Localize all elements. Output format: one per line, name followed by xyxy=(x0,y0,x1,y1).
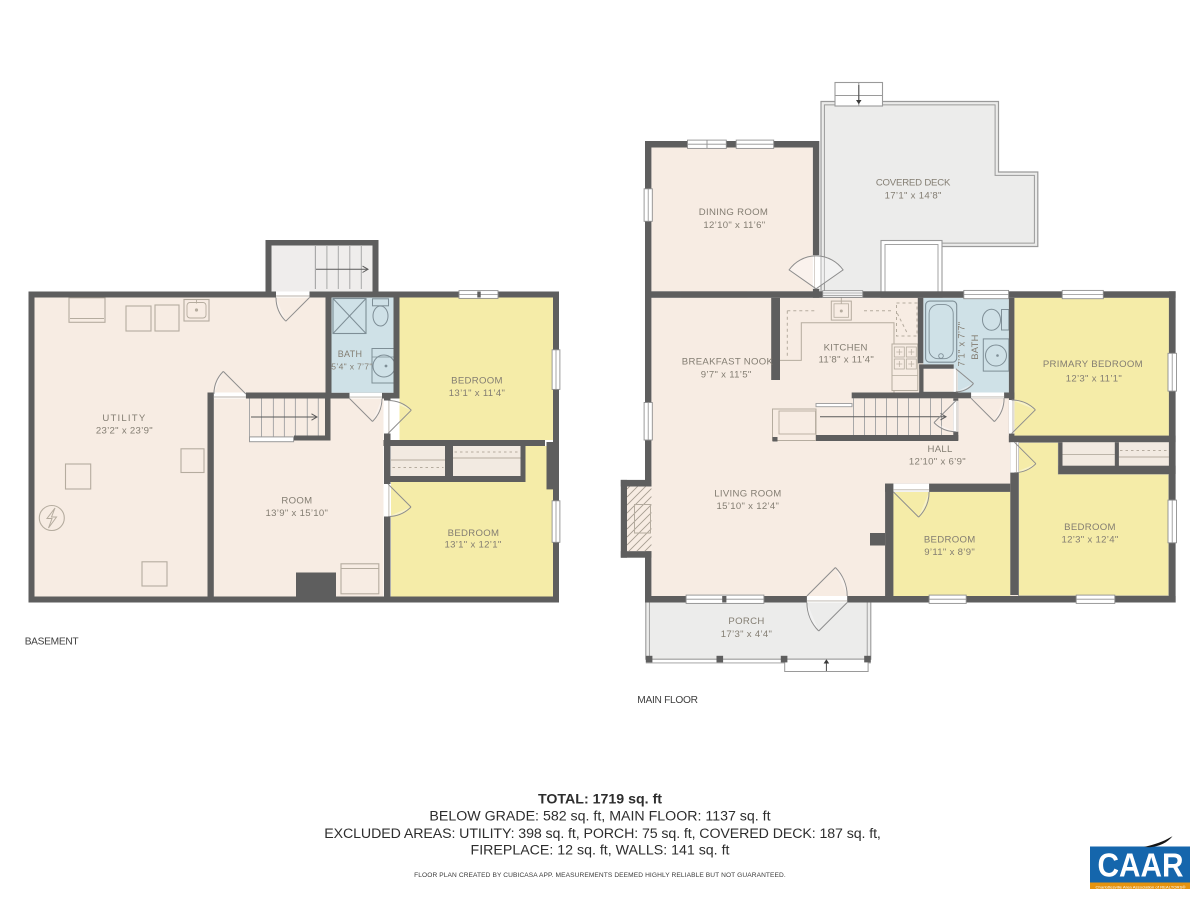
svg-text:HALL: HALL xyxy=(927,444,953,455)
svg-text:TOTAL: 1719 sq. ft: TOTAL: 1719 sq. ft xyxy=(538,792,662,808)
svg-text:FLOOR PLAN CREATED BY CUBICASA: FLOOR PLAN CREATED BY CUBICASA APP. MEAS… xyxy=(414,872,786,879)
svg-text:11’8" x 11’4": 11’8" x 11’4" xyxy=(818,355,874,366)
svg-text:FIREPLACE: 12 sq. ft, WALLS: 1: FIREPLACE: 12 sq. ft, WALLS: 141 sq. ft xyxy=(471,842,730,858)
svg-text:CAAR: CAAR xyxy=(1098,847,1184,884)
svg-text:UTILITY: UTILITY xyxy=(102,413,146,424)
svg-text:17’1" x 14’8": 17’1" x 14’8" xyxy=(885,191,942,202)
svg-text:BATH: BATH xyxy=(969,334,980,360)
svg-text:BEDROOM: BEDROOM xyxy=(451,376,503,387)
svg-text:23’2" x 23’9": 23’2" x 23’9" xyxy=(96,426,153,437)
svg-text:12’3" x 11’1": 12’3" x 11’1" xyxy=(1066,373,1122,384)
svg-text:ROOM: ROOM xyxy=(281,496,312,507)
svg-text:BELOW GRADE: 582 sq. ft, MAIN: BELOW GRADE: 582 sq. ft, MAIN FLOOR: 113… xyxy=(429,808,770,824)
svg-text:MAIN FLOOR: MAIN FLOOR xyxy=(637,695,697,706)
svg-text:LIVING ROOM: LIVING ROOM xyxy=(714,489,781,500)
svg-text:15’10" x 12’4": 15’10" x 12’4" xyxy=(717,501,780,512)
svg-text:Charlottesville Area Associati: Charlottesville Area Association of REAL… xyxy=(1096,885,1187,889)
svg-text:13’1" x 11’4": 13’1" x 11’4" xyxy=(449,388,505,399)
svg-text:12’3" x 12’4": 12’3" x 12’4" xyxy=(1061,535,1118,546)
svg-text:BEDROOM: BEDROOM xyxy=(448,528,500,539)
svg-text:BEDROOM: BEDROOM xyxy=(1064,522,1116,533)
svg-text:BATH: BATH xyxy=(338,349,363,359)
svg-text:13’9" x 15’10": 13’9" x 15’10" xyxy=(266,508,329,519)
svg-text:BREAKFAST NOOK: BREAKFAST NOOK xyxy=(682,357,774,368)
svg-text:13’1" x 12’1": 13’1" x 12’1" xyxy=(444,540,501,551)
svg-text:DINING ROOM: DINING ROOM xyxy=(699,207,768,218)
svg-text:17’3" x 4’4": 17’3" x 4’4" xyxy=(721,629,772,640)
svg-text:12’10" x 11’6": 12’10" x 11’6" xyxy=(703,220,765,231)
svg-text:KITCHEN: KITCHEN xyxy=(824,343,868,354)
svg-text:COVERED DECK: COVERED DECK xyxy=(876,178,951,189)
svg-text:BEDROOM: BEDROOM xyxy=(924,535,976,546)
svg-text:7’1" x 7’7": 7’1" x 7’7" xyxy=(956,322,967,367)
svg-text:PORCH: PORCH xyxy=(728,616,764,627)
svg-text:5’4" x 7’7": 5’4" x 7’7" xyxy=(331,361,372,371)
svg-text:12’10" x 6’9": 12’10" x 6’9" xyxy=(909,456,966,467)
svg-text:BASEMENT: BASEMENT xyxy=(25,637,79,648)
svg-text:9’7" x 11’5": 9’7" x 11’5" xyxy=(701,369,752,380)
svg-text:9’11" x 8’9": 9’11" x 8’9" xyxy=(924,547,975,558)
svg-text:EXCLUDED AREAS: UTILITY: 398 s: EXCLUDED AREAS: UTILITY: 398 sq. ft, POR… xyxy=(324,826,881,842)
svg-text:PRIMARY BEDROOM: PRIMARY BEDROOM xyxy=(1043,359,1143,370)
